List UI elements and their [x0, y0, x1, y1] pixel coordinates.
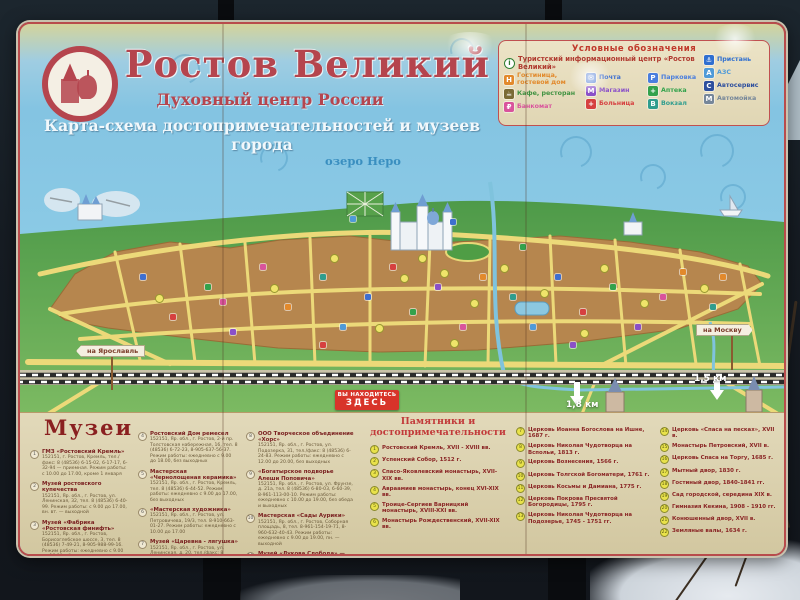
poi-marker-icon — [720, 274, 726, 280]
poi-marker-icon — [320, 274, 326, 280]
legend-item-label: Автосервис — [717, 83, 758, 90]
poi-marker-icon — [320, 342, 326, 348]
poi-marker-icon — [435, 284, 441, 290]
monument-number-badge: 21 — [660, 516, 669, 525]
museum-number-badge: 3 — [30, 521, 39, 530]
legend-item-label: Вокзал — [661, 101, 687, 108]
museum-list-item: 1ГМЗ «Ростовский Кремль»152151, г. Росто… — [30, 449, 130, 477]
boat-illustration — [720, 196, 742, 216]
legend-column: PПарковка+АптекаВВокзал — [648, 73, 704, 112]
monument-name: Успенский Собор, 1512 г. — [382, 457, 461, 463]
monument-name: Ростовский Кремль, XVII - XVIII вв. — [382, 445, 490, 451]
lake-nero-label: озеро Неро — [288, 154, 438, 168]
legend-item-label: Автомойка — [717, 96, 756, 103]
monument-list-item: 14Церковь «Спаса на песках», XVII в. — [660, 427, 776, 440]
museum-name: Музей ростовского купечества — [42, 481, 130, 493]
monument-number-badge: 2 — [370, 457, 379, 466]
info-icon: i — [504, 58, 515, 69]
monument-number-badge: 12 — [516, 496, 525, 505]
legend-item: PПарковка — [648, 73, 704, 83]
info-panel: Музеи 1ГМЗ «Ростовский Кремль»152151, г.… — [20, 412, 784, 554]
poi-number-dot — [418, 254, 427, 263]
museum-list-item: 3Музей «Фабрика «Ростовская финифть»1521… — [30, 520, 130, 556]
monument-name: Церковь Николая Чудотворца на Вспольи, 1… — [528, 443, 650, 456]
museums-column-3: 8ООО Творческое объединение «Хорс»152151… — [246, 417, 354, 550]
museum-details: 152151, Яр. обл., г. Ростов, ул. Петрови… — [150, 513, 238, 535]
worn-spot — [565, 62, 615, 92]
museum-details: 152151, г. Ростов, Кремль, тел./факс: 8 … — [42, 455, 130, 477]
poi-marker-icon — [410, 309, 416, 315]
poi-marker-icon — [230, 329, 236, 335]
signpost-yaroslavl: на Ярославль — [76, 345, 145, 357]
museum-number-badge: 5 — [138, 470, 147, 479]
legend-item: +Аптека — [648, 86, 704, 96]
poi-number-dot — [600, 264, 609, 273]
monument-list-item: 6Монастырь Рождественский, XVII-XIX вв. — [370, 518, 506, 531]
you-are-here-line2: ЗДЕСЬ — [336, 398, 398, 408]
legend-item-icon: H — [504, 75, 514, 85]
legend-item-icon: С — [704, 81, 714, 91]
poi-number-dot — [155, 294, 164, 303]
legend-item-label: Аптека — [661, 88, 687, 95]
monument-list-item: 18Гостиный двор, 1840-1841 гг. — [660, 480, 776, 489]
museum-name: Музей «Лукова Слобода» — народная академ… — [258, 551, 354, 556]
monument-name: Спасо-Яковлевский монастырь, XVII-XIX вв… — [382, 469, 506, 482]
monument-number-badge: 4 — [370, 486, 379, 495]
museum-details: 152151, Яр. обл., г. Ростов, Соборная пл… — [258, 520, 354, 548]
legend-item-icon: М — [704, 94, 714, 104]
museum-list-item: 9«Богатырское подворье Алеши Поповича»15… — [246, 469, 354, 509]
poi-marker-icon — [570, 342, 576, 348]
museum-details: 152151, Яр. обл., г. Ростов, 2-й пр. Тол… — [150, 437, 238, 465]
museum-number-badge: 1 — [30, 450, 39, 459]
board-subtitle: Духовный центр России — [120, 90, 420, 109]
monument-name: Церковь Спаса на Торгу, 1685 г. — [672, 455, 773, 461]
monument-list-item: 11Церковь Косьмы и Дамиана, 1775 г. — [516, 484, 650, 493]
monument-name: Церковь Николая Чудотворца на Подозерье,… — [528, 512, 650, 525]
museum-details: 152151, Яр. обл., г. Ростов, Борисоглебс… — [42, 532, 130, 556]
poi-number-dot — [470, 299, 479, 308]
legend-item: САвтосервис — [704, 81, 764, 91]
museum-number-badge: 10 — [246, 514, 255, 523]
monument-name: Гостиный двор, 1840-1841 гг. — [672, 480, 765, 486]
legend-item-icon: В — [648, 99, 658, 109]
museum-name: Музей «Фабрика «Ростовская финифть» — [42, 520, 130, 532]
monument-number-badge: 3 — [370, 469, 379, 478]
monuments-header: Памятники и достопримечательности — [370, 417, 506, 439]
you-are-here-marker: ВЫ НАХОДИТЕСЬ ЗДЕСЬ — [335, 390, 399, 410]
museum-details: 152151, Яр. обл., г. Ростов, ул. Фрунзе,… — [258, 482, 354, 510]
museum-name: Музей «Царевна - лягушка» — [150, 539, 238, 545]
monument-list-item: 3Спасо-Яковлевский монастырь, XVII-XIX в… — [370, 469, 506, 482]
emblem-kremlin-bell-icon — [48, 52, 112, 116]
poi-number-dot — [540, 289, 549, 298]
legend-item-icon: ☕ — [504, 89, 514, 99]
legend-right-column: ⚓ПристаньААЗССАвтосервисМАвтомойка — [704, 54, 764, 112]
legend-item-label: Больница — [599, 101, 634, 108]
monument-number-badge: 18 — [660, 480, 669, 489]
poi-marker-icon — [680, 269, 686, 275]
poi-marker-icon — [480, 274, 486, 280]
museum-list-item: 11Музей «Лукова Слобода» — народная акад… — [246, 551, 354, 556]
poi-marker-icon — [710, 304, 716, 310]
legend-item-icon: А — [704, 68, 714, 78]
monument-name: Конюшенный двор, XVII в. — [672, 516, 755, 522]
panel-seam — [525, 24, 527, 554]
poi-marker-icon — [260, 264, 266, 270]
museums-column-1: 1ГМЗ «Ростовский Кремль»152151, г. Росто… — [30, 417, 130, 550]
monument-name: Авраамиев монастырь, конец XVI-XIX вв. — [382, 486, 506, 499]
monument-list-item: 9Церковь Вознесения, 1566 г. — [516, 459, 650, 468]
poi-marker-icon — [635, 324, 641, 330]
museum-list-item: 10Мастерская «Сады Аурики»152151, Яр. об… — [246, 513, 354, 547]
museum-number-badge: 6 — [138, 508, 147, 517]
poi-number-dot — [580, 329, 589, 338]
poi-marker-icon — [555, 274, 561, 280]
monument-number-badge: 6 — [370, 518, 379, 527]
monument-name: Монастырь Петровский, XVII в. — [672, 443, 769, 449]
monument-name: Сад городской, середина XIX в. — [672, 492, 772, 498]
monument-list-item: 16Церковь Спаса на Торгу, 1685 г. — [660, 455, 776, 464]
monument-name: Земляные валы, 1634 г. — [672, 528, 747, 534]
monument-name: Монастырь Рождественский, XVII-XIX вв. — [382, 518, 506, 531]
monument-name: Гимназия Кекина, 1908 - 1910 гг. — [672, 504, 776, 510]
poi-marker-icon — [460, 324, 466, 330]
poi-number-dot — [450, 339, 459, 348]
museum-details: 152151, Яр. обл., г. Ростов, ул. Подозер… — [258, 443, 354, 465]
legend-item-icon: P — [648, 73, 658, 83]
monuments-section: Памятники и достопримечательности 1Росто… — [356, 417, 776, 550]
monument-number-badge: 10 — [516, 472, 525, 481]
monument-list-item: 2Успенский Собор, 1512 г. — [370, 457, 506, 466]
worn-spot — [440, 32, 500, 58]
museum-name: ООО Творческое объединение «Хорс» — [258, 431, 354, 443]
monument-name: Троице-Сергиев Варницкий монастырь, XVII… — [382, 502, 506, 515]
monument-list-item: 19Сад городской, середина XIX в. — [660, 492, 776, 501]
fence-post — [545, 0, 562, 24]
distance-label-left: 1,8 км — [566, 400, 599, 410]
poi-marker-icon — [530, 324, 536, 330]
monument-number-badge: 19 — [660, 492, 669, 501]
monument-number-badge: 14 — [660, 427, 669, 436]
poi-number-dot — [400, 274, 409, 283]
fence-post — [218, 0, 234, 24]
museum-number-badge: 4 — [138, 432, 147, 441]
monument-number-badge: 20 — [660, 504, 669, 513]
museum-name: Мастерская «Чернолощеная керамика» — [150, 469, 238, 481]
poi-marker-icon — [365, 294, 371, 300]
board-leg — [548, 550, 586, 600]
legend-item: МАвтомойка — [704, 94, 764, 104]
museum-list-item: 8ООО Творческое объединение «Хорс»152151… — [246, 431, 354, 465]
snow-patch — [240, 575, 460, 600]
poi-marker-icon — [140, 274, 146, 280]
monument-number-badge: 15 — [660, 443, 669, 452]
poi-marker-icon — [610, 284, 616, 290]
monument-name: Церковь Косьмы и Дамиана, 1775 г. — [528, 484, 641, 490]
museum-number-badge: 8 — [246, 432, 255, 441]
museum-name: «Богатырское подворье Алеши Поповича» — [258, 469, 354, 481]
monument-number-badge: 13 — [516, 512, 525, 521]
poi-number-dot — [375, 324, 384, 333]
museum-details: 152151, Яр. обл., г. Ростов, ул. Ленинск… — [150, 546, 238, 556]
poi-marker-icon — [340, 324, 346, 330]
legend-item-label: АЗС — [717, 70, 731, 77]
monument-name: Мытный двор, 1830 г. — [672, 468, 741, 474]
legend-item: +Больница — [586, 99, 644, 109]
museum-number-badge: 11 — [246, 552, 255, 556]
monument-number-badge: 5 — [370, 502, 379, 511]
legend-item: ₽Банкомат — [504, 102, 582, 112]
tourist-map-board: Ростов Великий – Духовный центр России К… — [18, 22, 786, 556]
legend-item-label: Пристань — [717, 57, 751, 64]
monument-list-item: 15Монастырь Петровский, XVII в. — [660, 443, 776, 452]
monument-name: Церковь Покрова Пресвятой Богородицы, 17… — [528, 496, 650, 509]
museum-number-badge: 7 — [138, 540, 147, 549]
monument-list-item: 1Ростовский Кремль, XVII - XVIII вв. — [370, 445, 506, 454]
poi-marker-icon — [510, 294, 516, 300]
poi-number-dot — [270, 284, 279, 293]
monument-number-badge: 22 — [660, 528, 669, 537]
monument-list-item: 20Гимназия Кекина, 1908 - 1910 гг. — [660, 504, 776, 513]
poi-marker-icon — [350, 216, 356, 222]
monuments-column-2: 7Церковь Иоанна Богослова на Ишне, 1687 … — [516, 417, 650, 550]
legend-item-label: Парковка — [661, 75, 696, 82]
legend-item-icon: ⚓ — [704, 55, 714, 65]
monument-list-item: 4Авраамиев монастырь, конец XVI-XIX вв. — [370, 486, 506, 499]
legend-item: ⚓Пристань — [704, 55, 764, 65]
monument-list-item: 13Церковь Николая Чудотворца на Подозерь… — [516, 512, 650, 525]
monuments-column-3: 14Церковь «Спаса на песках», XVII в.15Мо… — [660, 417, 776, 550]
monument-list-item: 17Мытный двор, 1830 г. — [660, 468, 776, 477]
legend-item-icon: + — [586, 99, 596, 109]
legend-item: ВВокзал — [648, 99, 704, 109]
monument-list-item: 22Земляные валы, 1634 г. — [660, 528, 776, 537]
monument-number-badge: 9 — [516, 459, 525, 468]
museum-list-item: 2Музей ростовского купечества152151, Яр.… — [30, 481, 130, 515]
museum-number-badge: 2 — [30, 482, 39, 491]
monument-name: Церковь «Спаса на песках», XVII в. — [672, 427, 776, 440]
monument-number-badge: 11 — [516, 484, 525, 493]
monument-list-item: 8Церковь Николая Чудотворца на Вспольи, … — [516, 443, 650, 456]
poi-marker-icon — [170, 314, 176, 320]
monument-name: Церковь Вознесения, 1566 г. — [528, 459, 618, 465]
museum-details: 152151, Яр. обл., г. Ростов, ул. Ленинск… — [42, 494, 130, 516]
poi-marker-icon — [580, 309, 586, 315]
poi-marker-icon — [390, 264, 396, 270]
museum-details: 152151, Яр. обл., г. Ростов, Кремль, тел… — [150, 481, 238, 503]
monument-number-badge: 1 — [370, 445, 379, 454]
poi-marker-icon — [205, 284, 211, 290]
legend-item-icon: ₽ — [504, 102, 514, 112]
monument-list-item: 21Конюшенный двор, XVII в. — [660, 516, 776, 525]
legend-item: ААЗС — [704, 68, 764, 78]
monument-list-item: 7Церковь Иоанна Богослова на Ишне, 1687 … — [516, 427, 650, 440]
museum-name: Мастерская «Сады Аурики» — [258, 513, 354, 519]
poi-number-dot — [440, 269, 449, 278]
poi-number-dot — [640, 299, 649, 308]
monument-name: Церковь Иоанна Богослова на Ишне, 1687 г… — [528, 427, 650, 440]
worn-spot — [710, 24, 760, 54]
city-map: озеро Неро ВЫ НАХОДИТЕСЬ ЗДЕСЬ на Яросла… — [20, 124, 784, 414]
museums-section: Музеи 1ГМЗ «Ростовский Кремль»152151, г.… — [30, 417, 356, 550]
monument-list-item: 10Церковь Толгской Богоматери, 1761 г. — [516, 472, 650, 481]
museum-number-badge: 9 — [246, 470, 255, 479]
legend-item: ☕Кафе, ресторан — [504, 89, 582, 99]
panel-seam — [222, 24, 224, 554]
monument-name: Церковь Толгской Богоматери, 1761 г. — [528, 472, 649, 478]
poi-marker-icon — [285, 304, 291, 310]
legend-item-label: Банкомат — [517, 104, 552, 111]
poi-number-dot — [330, 254, 339, 263]
poi-marker-icon — [450, 219, 456, 225]
monuments-column-1: Памятники и достопримечательности 1Росто… — [370, 417, 506, 550]
monument-list-item: 12Церковь Покрова Пресвятой Богородицы, … — [516, 496, 650, 509]
city-emblem — [42, 46, 118, 122]
signpost-moscow: на Москву — [696, 324, 753, 336]
photo-background: Ростов Великий – Духовный центр России К… — [0, 0, 800, 600]
monument-number-badge: 7 — [516, 427, 525, 436]
legend-item-icon: + — [648, 86, 658, 96]
monument-list-item: 5Троице-Сергиев Варницкий монастырь, XVI… — [370, 502, 506, 515]
poi-number-dot — [500, 264, 509, 273]
distance-label-right: 1,5 км — [694, 374, 727, 384]
poi-number-dot — [700, 284, 709, 293]
monument-number-badge: 8 — [516, 443, 525, 452]
monument-number-badge: 17 — [660, 468, 669, 477]
poi-marker-icon — [660, 294, 666, 300]
board-leg — [203, 550, 241, 600]
monument-number-badge: 16 — [660, 455, 669, 464]
